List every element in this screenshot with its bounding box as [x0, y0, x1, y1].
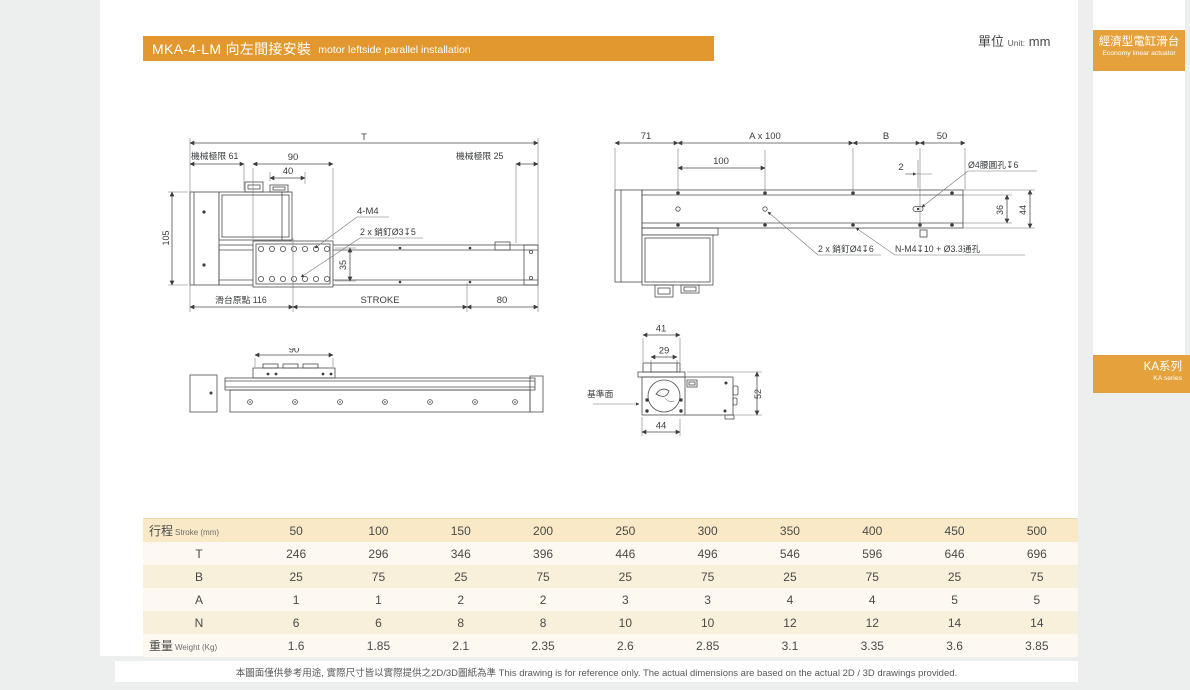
table-cell: 346 [420, 547, 502, 561]
table-cell: 5 [913, 593, 995, 607]
table-cell: 8 [502, 616, 584, 630]
table-cell: 25 [584, 570, 666, 584]
table-cell: 500 [996, 524, 1078, 538]
table-cell: 396 [502, 547, 584, 561]
table-cell: 496 [667, 547, 749, 561]
table-cell: 350 [749, 524, 831, 538]
row-label: T [143, 547, 255, 561]
table-row: T246296346396446496546596646696 [143, 542, 1078, 565]
dim-105: 105 [161, 230, 171, 245]
side-view-drawing: 90 [185, 348, 555, 428]
row-label: 行程Stroke (mm) [143, 522, 255, 539]
table-cell: 2 [502, 593, 584, 607]
table-cell: 12 [749, 616, 831, 630]
table-cell: 10 [584, 616, 666, 630]
table-cell: 75 [667, 570, 749, 584]
bottom-view-drawing: 71 A x 100 B 50 100 2 Ø4腰圓孔↧6 2 x 銷釘Ø4↧6… [600, 128, 1040, 308]
dim-71: 71 [641, 131, 652, 142]
table-cell: 14 [913, 616, 995, 630]
table-cell: 2.1 [420, 639, 502, 653]
side-view-outline [190, 364, 543, 412]
table-cell: 1 [255, 593, 337, 607]
table-cell: 2.85 [667, 639, 749, 653]
table-cell: 250 [584, 524, 666, 538]
table-cell: 1.6 [255, 639, 337, 653]
table-cell: 296 [337, 547, 419, 561]
table-cell: 1 [337, 593, 419, 607]
table-cell: 3.35 [831, 639, 913, 653]
table-cell: 8 [420, 616, 502, 630]
row-label: B [143, 570, 255, 584]
table-cell: 2.35 [502, 639, 584, 653]
table-cell: 4 [831, 593, 913, 607]
unit-label-en: Unit: [1008, 38, 1025, 48]
table-cell: 25 [913, 570, 995, 584]
label-slot-hole: Ø4腰圓孔↧6 [968, 160, 1018, 170]
unit-label-zh: 單位 [978, 34, 1004, 49]
dim-44-end: 44 [656, 421, 667, 432]
label-nm4: N-M4↧10 + Ø3.3通孔 [895, 244, 981, 254]
label-pin4: 2 x 銷釘Ø4↧6 [818, 243, 874, 254]
label-datum-plane: 基準面 [587, 388, 614, 399]
catalog-page-canvas: MKA-4-LM 向左間接安裝 motor leftside parallel … [0, 0, 1190, 690]
label-4m4: 4-M4 [357, 206, 379, 217]
tab-series-en: KA series [1093, 374, 1182, 383]
dim-stroke: STROKE [360, 295, 399, 306]
dim-100: 100 [713, 156, 729, 167]
dim-36: 36 [995, 205, 1005, 215]
table-row: N6688101012121414 [143, 611, 1078, 634]
table-cell: 150 [420, 524, 502, 538]
dim-52: 52 [753, 389, 763, 399]
table-cell: 450 [913, 524, 995, 538]
motor-logo [656, 389, 669, 396]
dim-origin-116: 滑台原點 116 [215, 294, 267, 305]
unit-value: mm [1029, 34, 1051, 49]
dim-41: 41 [656, 324, 667, 335]
dim-29: 29 [659, 346, 670, 357]
row-label: 重量Weight (Kg) [143, 637, 255, 654]
dim-ax100: A x 100 [749, 131, 781, 142]
row-label: N [143, 616, 255, 630]
dim-44: 44 [1018, 205, 1028, 215]
table-cell: 25 [420, 570, 502, 584]
table-cell: 75 [996, 570, 1078, 584]
tab-category-en: Economy linear actuator [1093, 49, 1185, 58]
table-cell: 25 [749, 570, 831, 584]
table-cell: 3.6 [913, 639, 995, 653]
dim-2: 2 [898, 162, 903, 173]
table-cell: 2.6 [584, 639, 666, 653]
dim-40: 40 [283, 166, 294, 177]
table-cell: 696 [996, 547, 1078, 561]
table-cell: 646 [913, 547, 995, 561]
dim-limit-left: 機械極限 61 [191, 150, 239, 161]
table-cell: 3 [667, 593, 749, 607]
table-cell: 75 [502, 570, 584, 584]
table-cell: 12 [831, 616, 913, 630]
table-cell: 5 [996, 593, 1078, 607]
dim-80: 80 [497, 295, 508, 306]
table-row: B25752575257525752575 [143, 565, 1078, 588]
end-view-drawing: 41 29 52 44 基準面 [585, 320, 800, 452]
table-cell: 3.85 [996, 639, 1078, 653]
tab-ka-series[interactable]: KA系列 KA series [1093, 355, 1190, 393]
table-cell: 6 [337, 616, 419, 630]
label-pin3: 2 x 銷釘Ø3↧5 [360, 226, 416, 237]
spec-table: 行程Stroke (mm)501001502002503003504004505… [143, 518, 1078, 657]
bottom-view-outline [615, 148, 963, 297]
tab-economy-linear-actuator[interactable]: 經濟型電缸滑台 Economy linear actuator [1093, 30, 1185, 71]
tab-category-zh: 經濟型電缸滑台 [1093, 36, 1185, 49]
dim-t: T [361, 132, 367, 142]
top-view-drawing: T 機械極限 61 90 40 機械極限 25 105 [160, 128, 580, 320]
table-cell: 25 [255, 570, 337, 584]
footer-strip: 本圖面僅供參考用途, 實際尺寸皆以實際提供之2D/3D圖紙為準 This dra… [115, 661, 1078, 682]
end-view-dimensions: 41 29 52 44 基準面 [587, 324, 763, 437]
table-cell: 596 [831, 547, 913, 561]
table-cell: 300 [667, 524, 749, 538]
page-subtitle: motor leftside parallel installation [318, 41, 470, 56]
table-cell: 50 [255, 524, 337, 538]
table-cell: 3.1 [749, 639, 831, 653]
title-bar: MKA-4-LM 向左間接安裝 motor leftside parallel … [143, 36, 714, 61]
dim-35: 35 [338, 260, 348, 270]
table-cell: 4 [749, 593, 831, 607]
dim-50: 50 [937, 131, 948, 142]
dim-b: B [883, 131, 889, 142]
table-cell: 400 [831, 524, 913, 538]
table-cell: 200 [502, 524, 584, 538]
table-cell: 14 [996, 616, 1078, 630]
table-cell: 75 [831, 570, 913, 584]
table-cell: 75 [337, 570, 419, 584]
table-cell: 6 [255, 616, 337, 630]
unit-indicator: 單位 Unit: mm [978, 31, 1050, 50]
footer-disclaimer: 本圖面僅供參考用途, 實際尺寸皆以實際提供之2D/3D圖紙為準 This dra… [236, 665, 957, 679]
table-cell: 546 [749, 547, 831, 561]
dim-90: 90 [288, 152, 299, 163]
dim-limit-right: 機械極限 25 [456, 150, 504, 161]
table-cell: 10 [667, 616, 749, 630]
table-cell: 2 [420, 593, 502, 607]
table-cell: 1.85 [337, 639, 419, 653]
dim-90-side: 90 [289, 348, 300, 356]
table-cell: 3 [584, 593, 666, 607]
end-view-outline [638, 363, 738, 419]
table-row: A1122334455 [143, 588, 1078, 611]
table-row: 重量Weight (Kg)1.61.852.12.352.62.853.13.3… [143, 634, 1078, 657]
tab-series-zh: KA系列 [1093, 361, 1182, 374]
page-title: MKA-4-LM 向左間接安裝 [152, 39, 311, 59]
table-cell: 446 [584, 547, 666, 561]
table-cell: 246 [255, 547, 337, 561]
row-label: A [143, 593, 255, 607]
table-header-row: 行程Stroke (mm)501001502002503003504004505… [143, 519, 1078, 542]
table-cell: 100 [337, 524, 419, 538]
